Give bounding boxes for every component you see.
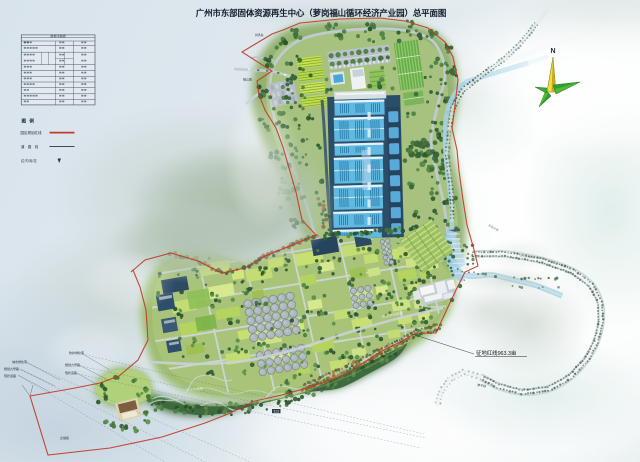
svg-text:道 路 线: 道 路 线 <box>21 144 39 149</box>
svg-text:用地平衡表: 用地平衡表 <box>50 33 65 38</box>
svg-text:企福路: 企福路 <box>60 435 69 440</box>
svg-text:排洪渠: 排洪渠 <box>255 33 264 37</box>
svg-text:城市绿化带: 城市绿化带 <box>12 359 27 364</box>
svg-text:313: 313 <box>274 410 280 414</box>
svg-text:广州市东部固体资源再生中心（萝岗福山循环经济产业园）总平面图: 广州市东部固体资源再生中心（萝岗福山循环经济产业园）总平面图 <box>196 8 447 18</box>
svg-text:园区规划红线: 园区规划红线 <box>21 130 42 135</box>
svg-text:现状道路: 现状道路 <box>65 370 77 375</box>
svg-text:征地红线963.3亩: 征地红线963.3亩 <box>476 349 517 357</box>
svg-text:现状道路: 现状道路 <box>4 373 16 378</box>
svg-text:防护绿化带: 防护绿化带 <box>69 350 84 355</box>
svg-text:永顺大道: 永顺大道 <box>313 386 325 391</box>
svg-text:福山路: 福山路 <box>243 77 252 82</box>
svg-text:规划九号路: 规划九号路 <box>65 362 80 367</box>
svg-text:边沟标志: 边沟标志 <box>21 158 37 163</box>
svg-text:N: N <box>550 48 555 55</box>
svg-text:图 例: 图 例 <box>22 118 35 125</box>
svg-text:规划九号路: 规划九号路 <box>4 366 19 371</box>
